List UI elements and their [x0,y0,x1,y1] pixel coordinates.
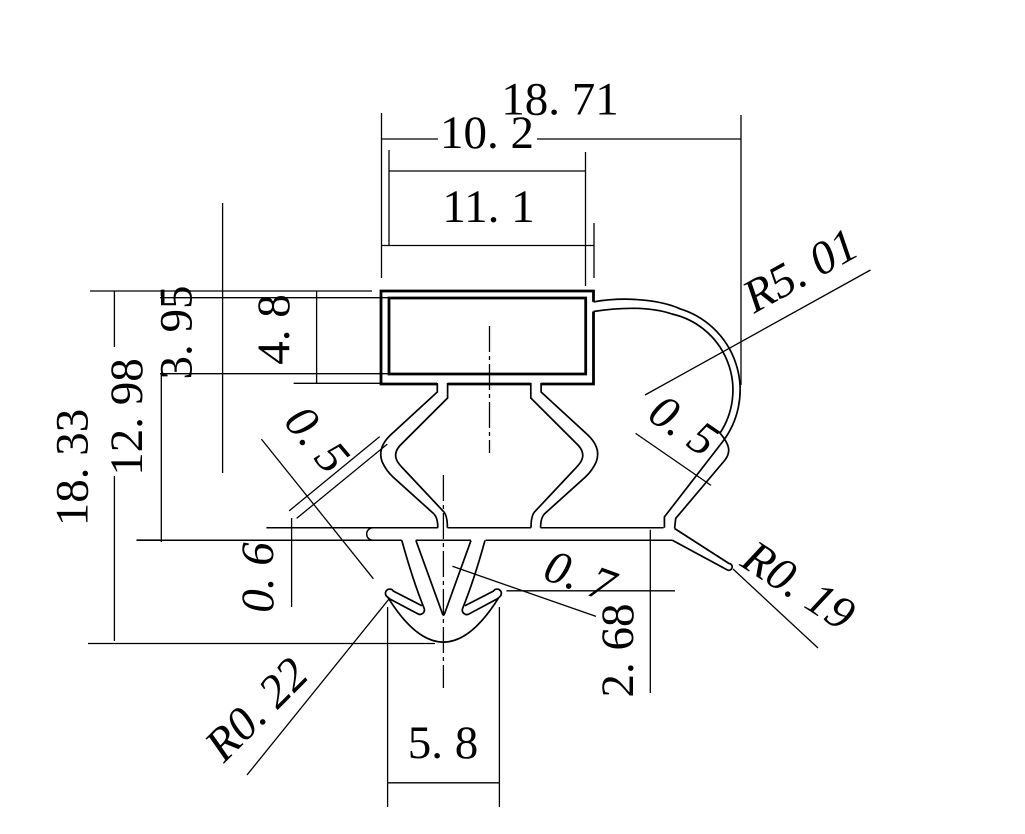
svg-text:12. 98: 12. 98 [101,358,153,476]
svg-text:11. 1: 11. 1 [442,181,534,233]
svg-text:0. 6: 0. 6 [232,542,284,613]
svg-text:3. 95: 3. 95 [151,286,203,380]
svg-text:5. 8: 5. 8 [408,717,479,769]
svg-text:10. 2: 10. 2 [440,107,534,159]
svg-text:4. 8: 4. 8 [248,294,300,365]
svg-text:2. 68: 2. 68 [592,604,644,698]
svg-text:18. 33: 18. 33 [47,409,99,527]
